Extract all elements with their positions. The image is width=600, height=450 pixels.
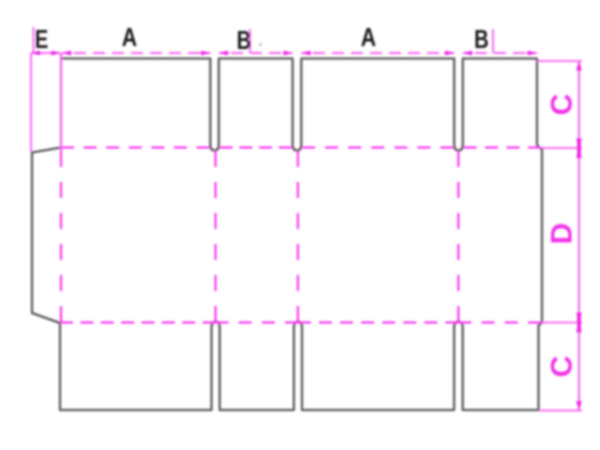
svg-text:A: A: [361, 23, 376, 53]
svg-text:A: A: [122, 23, 137, 53]
svg-text:B: B: [474, 25, 489, 54]
svg-text:C: C: [546, 356, 579, 378]
svg-text:C: C: [546, 94, 579, 116]
svg-text:E: E: [35, 25, 49, 54]
svg-text:D: D: [546, 223, 579, 245]
svg-text:B: B: [237, 26, 252, 55]
